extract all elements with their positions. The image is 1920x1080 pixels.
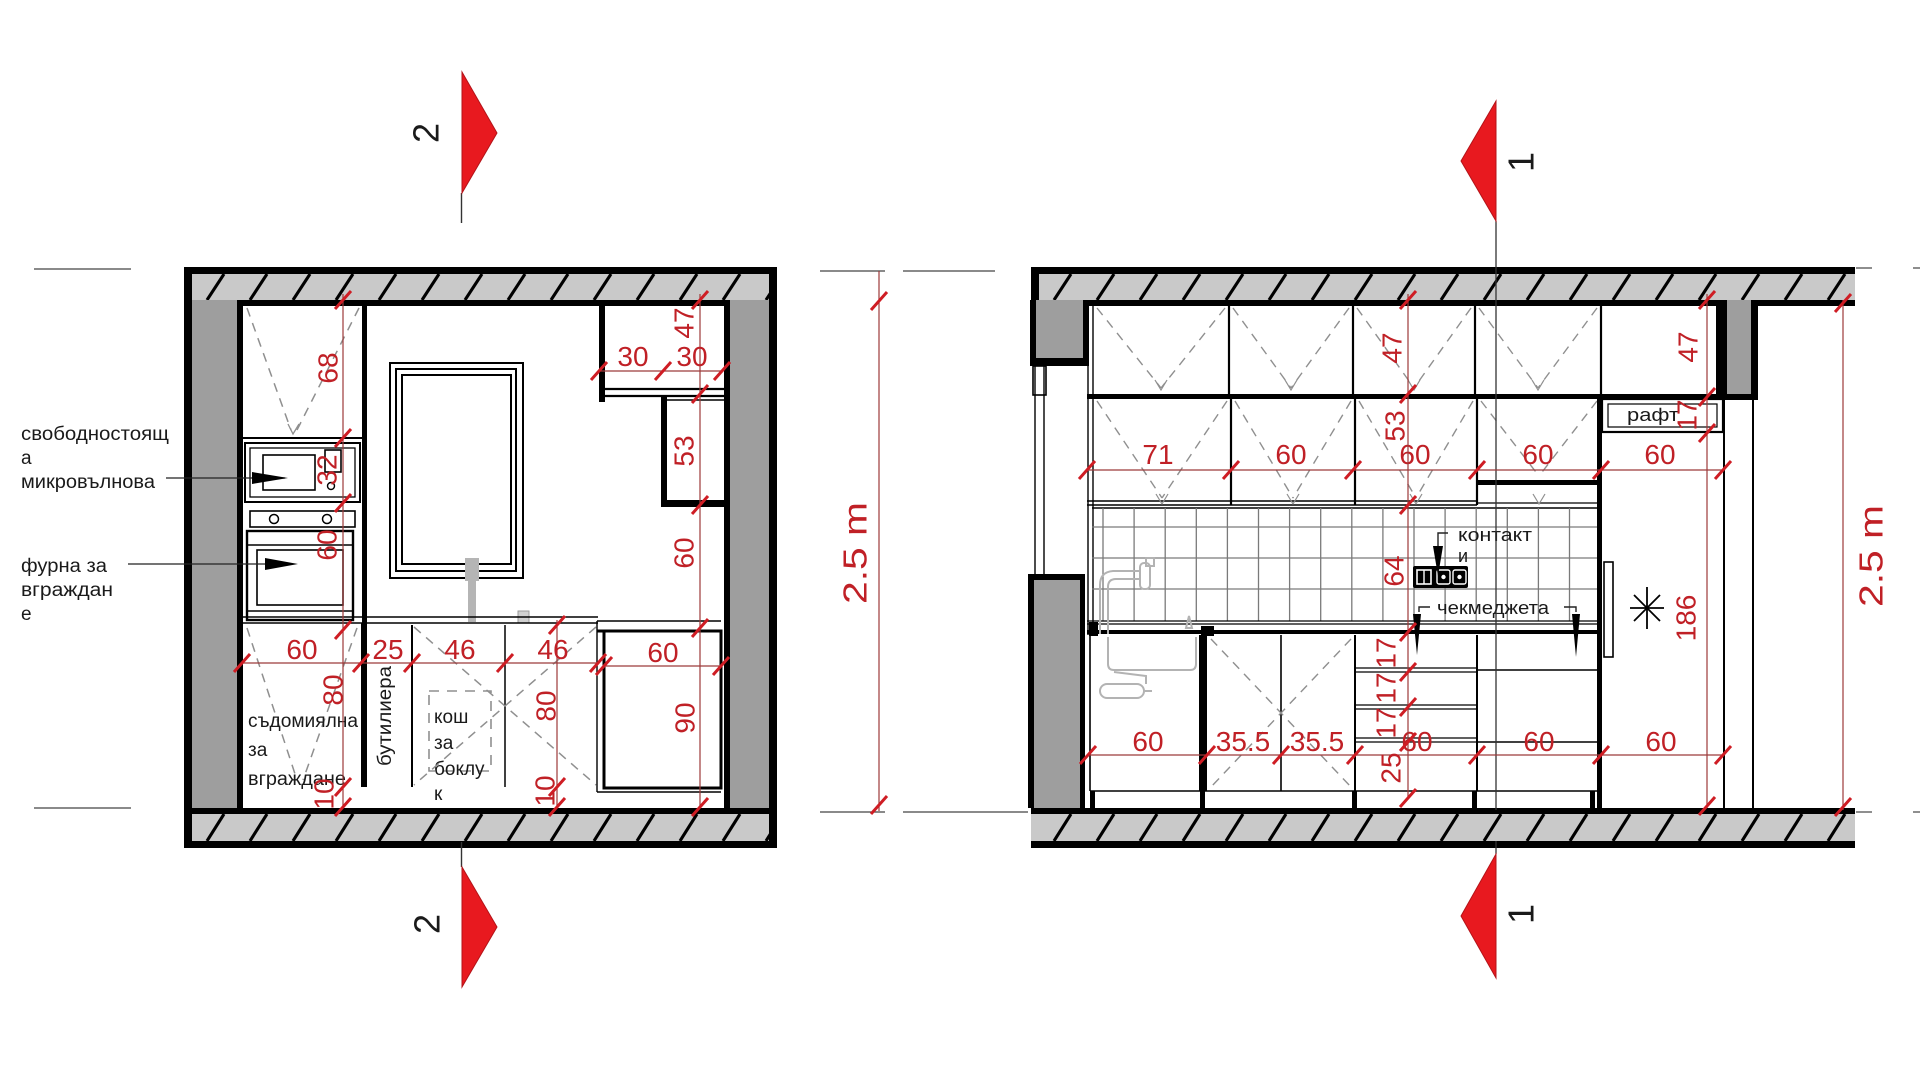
svg-text:2.5 m: 2.5 m: [837, 502, 874, 604]
svg-text:60: 60: [1523, 726, 1554, 757]
svg-text:1: 1: [1501, 152, 1542, 172]
svg-text:60: 60: [311, 529, 342, 560]
svg-text:за: за: [248, 740, 268, 761]
svg-text:свободностоящ: свободностоящ: [21, 424, 169, 445]
svg-text:60: 60: [647, 637, 678, 668]
svg-text:60: 60: [668, 537, 699, 568]
svg-text:бутилиера: бутилиера: [375, 666, 396, 766]
svg-text:25: 25: [1375, 752, 1406, 783]
svg-text:17: 17: [1370, 637, 1401, 668]
svg-text:186: 186: [1670, 595, 1701, 642]
svg-text:60: 60: [1399, 439, 1430, 470]
svg-text:17: 17: [1671, 399, 1702, 430]
svg-text:46: 46: [444, 634, 475, 665]
svg-text:71: 71: [1142, 439, 1173, 470]
svg-text:2: 2: [407, 914, 448, 934]
svg-text:фурна за: фурна за: [21, 556, 107, 577]
svg-text:60: 60: [1132, 726, 1163, 757]
svg-text:47: 47: [668, 307, 699, 338]
svg-text:1: 1: [1501, 904, 1542, 924]
svg-text:60: 60: [1522, 439, 1553, 470]
svg-text:10: 10: [529, 775, 560, 806]
svg-text:90: 90: [669, 702, 700, 733]
svg-text:68: 68: [312, 352, 343, 383]
svg-text:а: а: [21, 448, 32, 469]
svg-text:чекмеджета: чекмеджета: [1437, 598, 1550, 618]
svg-text:60: 60: [286, 634, 317, 665]
svg-text:30: 30: [617, 341, 648, 372]
svg-text:35.5: 35.5: [1290, 726, 1345, 757]
svg-text:47: 47: [1672, 331, 1703, 362]
svg-text:микровълнова: микровълнова: [21, 472, 155, 493]
svg-text:к: к: [434, 784, 443, 805]
svg-text:60: 60: [1275, 439, 1306, 470]
svg-text:60: 60: [1401, 726, 1432, 757]
svg-text:53: 53: [668, 435, 699, 466]
svg-text:47: 47: [1376, 332, 1407, 363]
svg-text:80: 80: [530, 690, 561, 721]
svg-text:30: 30: [676, 341, 707, 372]
svg-text:17: 17: [1370, 707, 1401, 738]
svg-text:кош: кош: [434, 707, 468, 728]
svg-text:64: 64: [1378, 555, 1409, 586]
svg-text:25: 25: [372, 634, 403, 665]
svg-text:17: 17: [1370, 672, 1401, 703]
svg-text:съдомиялна: съдомиялна: [248, 711, 358, 732]
svg-text:2.5 m: 2.5 m: [1853, 505, 1890, 607]
svg-text:60: 60: [1645, 726, 1676, 757]
svg-text:35.5: 35.5: [1216, 726, 1271, 757]
svg-text:е: е: [21, 604, 32, 625]
svg-text:60: 60: [1644, 439, 1675, 470]
svg-text:46: 46: [537, 634, 568, 665]
svg-text:и: и: [1458, 546, 1468, 566]
svg-text:вграждан: вграждан: [21, 580, 113, 601]
svg-text:53: 53: [1379, 410, 1410, 441]
svg-text:32: 32: [311, 454, 342, 485]
svg-text:боклу: боклу: [434, 759, 485, 780]
svg-text:2: 2: [406, 123, 447, 143]
svg-text:80: 80: [317, 674, 348, 705]
svg-text:контакт: контакт: [1458, 525, 1532, 545]
svg-text:за: за: [434, 733, 454, 754]
svg-text:10: 10: [308, 778, 339, 809]
